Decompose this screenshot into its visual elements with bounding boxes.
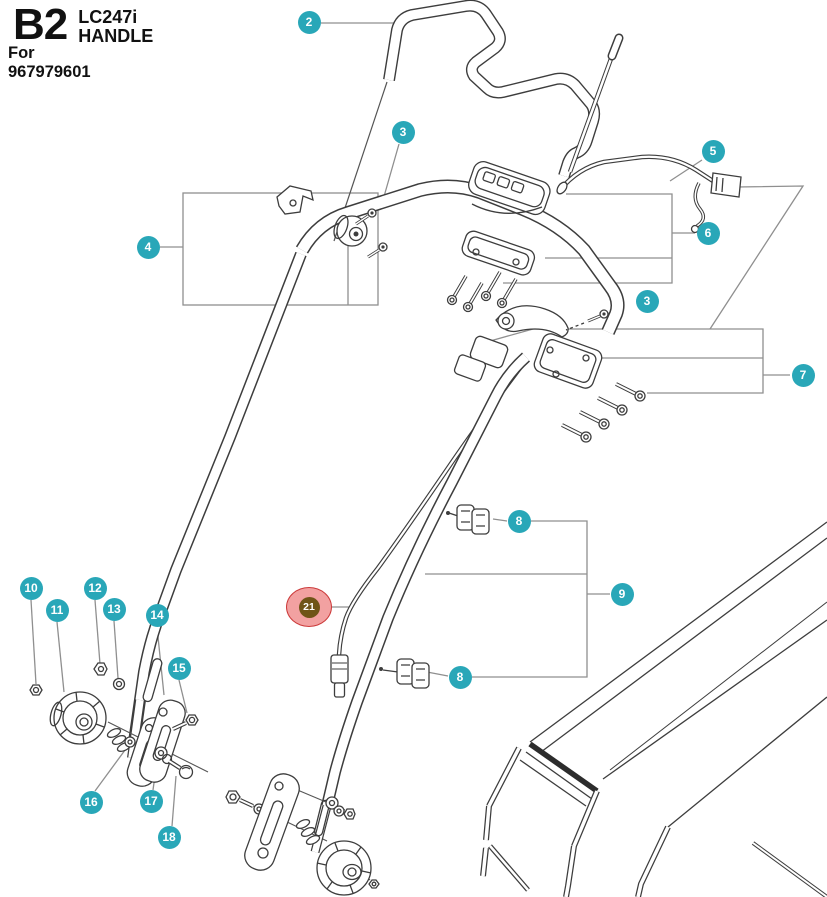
bracket-plate-part [532,332,604,391]
part-balloon-8[interactable]: 8 [508,510,531,533]
part-balloon-7[interactable]: 7 [792,364,815,387]
upper-handle-bar-art [302,186,618,332]
lower-handle-right-art [327,357,526,806]
part-balloon-5[interactable]: 5 [702,140,725,163]
bracket-screws-art [562,384,645,442]
part-balloon-16[interactable]: 16 [80,791,103,814]
knob-11-part [48,692,106,744]
part-balloon-21-highlighted[interactable]: 21 [286,587,332,627]
washer-16-part [125,737,135,747]
handle-tubes-art [132,6,619,806]
part-balloon-3[interactable]: 3 [636,290,659,313]
bottom-knob-part [317,841,371,895]
diagram-code: B2 [13,4,67,46]
part-balloon-3[interactable]: 3 [392,121,415,144]
part-balloon-13[interactable]: 13 [103,598,126,621]
handle-loop-art [389,6,594,176]
washer-13-part [114,679,125,690]
applies-to-label: For 967979601 [8,44,91,82]
diagram-section-name: HANDLE [78,27,153,46]
part-balloon-6[interactable]: 6 [697,222,720,245]
part-balloon-8[interactable]: 8 [449,666,472,689]
grass-catcher-art [483,522,827,897]
display-screws-art [448,272,517,312]
washer-17-part [155,747,167,759]
model-name: LC247i [78,8,153,27]
bottom-bracket-art [226,770,379,895]
parts-diagram-page: 234563789810111213141516171821 B2 LC247i… [0,0,827,897]
lower-handle-left-art [132,254,301,758]
part-balloon-14[interactable]: 14 [146,604,169,627]
part-balloon-18[interactable]: 18 [158,826,181,849]
nut-12-part [94,663,107,675]
part-balloon-17[interactable]: 17 [140,790,163,813]
callout-lines [31,23,803,826]
rod-art [570,38,619,172]
part-balloon-10[interactable]: 10 [20,577,43,600]
bottom-plate-part [241,770,303,874]
part-balloon-15[interactable]: 15 [168,657,191,680]
part-balloon-9[interactable]: 9 [611,583,634,606]
part-balloon-12[interactable]: 12 [84,577,107,600]
part-balloon-11[interactable]: 11 [46,599,69,622]
part-balloon-4[interactable]: 4 [137,236,160,259]
nut-10-part [30,685,42,695]
part-balloon-2[interactable]: 2 [298,11,321,34]
